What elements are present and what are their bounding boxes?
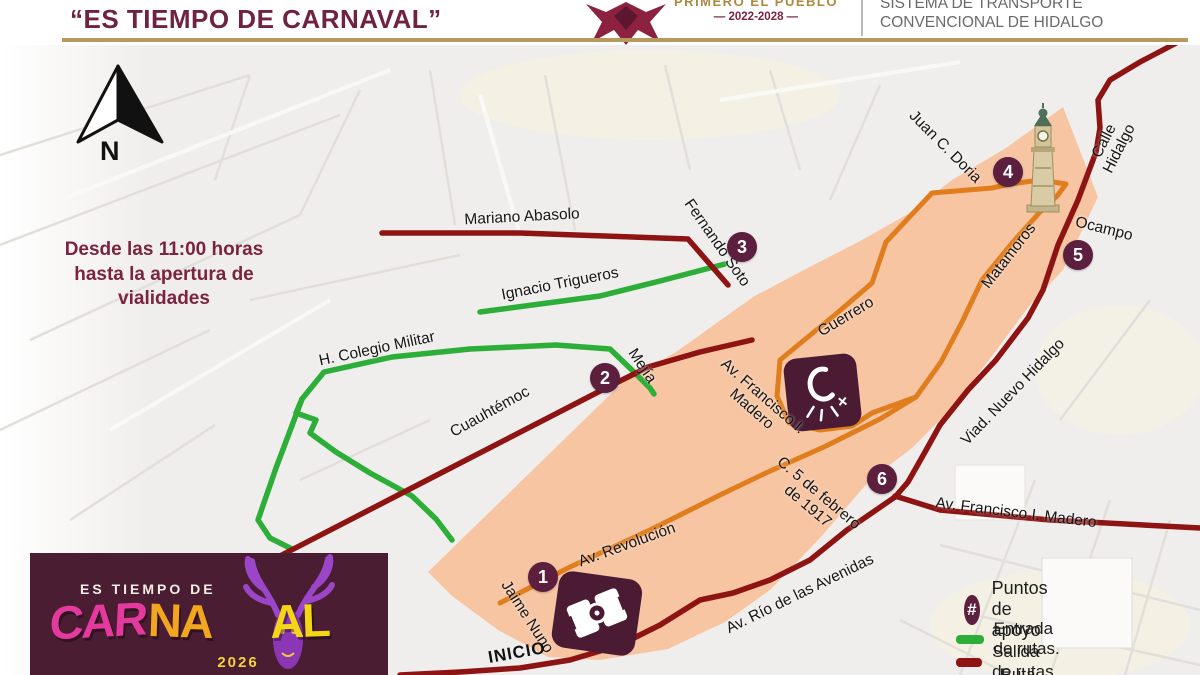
agency-name: SISTEMA DE TRANSPORTE CONVENCIONAL DE HI… [880,0,1103,32]
logo-period: — 2022-2028 — [664,11,848,23]
carnaval-2026-logo: ES TIEMPO DE CARNAAL 2026 [30,553,388,675]
gold-rule [62,38,1188,42]
north-label: N [100,136,120,167]
word-part-car: CAR [48,591,147,651]
header-divider [861,0,863,36]
agency-line-1: SISTEMA DE TRANSPORTE [880,0,1103,13]
map-tint [1035,305,1200,435]
page-header: “ES TIEMPO DE CARNAVAL” PRIMERO EL PUEBL… [0,0,1200,45]
support-point-marker-5: 5 [1063,240,1093,270]
support-point-marker-6: 6 [867,464,897,494]
logo-slogan: PRIMERO EL PUEBLO [664,0,848,9]
agency-line-2: CONVENCIONAL DE HIDALGO [880,13,1103,32]
support-point-marker-4: 4 [993,157,1023,187]
support-point-marker-1: 1 [528,562,558,592]
word-part-na: NA [147,592,213,649]
page-title: “ES TIEMPO DE CARNAVAL” [70,4,442,35]
legend-item-carnival-route: Ruta carnaval [956,665,1076,675]
map-tint [460,50,840,140]
legend-label: Ruta carnaval [1000,665,1077,675]
logo-wordmark: CARNAAL [50,593,388,663]
closure-notice: Desde las 11:00 horas hasta la apertura … [58,238,270,312]
word-part-al: AL [269,592,330,649]
stadium-icon [550,570,644,658]
support-point-marker-3: 3 [727,232,757,262]
logo-year: 2026 [198,654,278,671]
carnival-route-map-page: “ES TIEMPO DE CARNAVAL” PRIMERO EL PUEBL… [0,0,1200,675]
support-point-marker-2: 2 [590,363,620,393]
